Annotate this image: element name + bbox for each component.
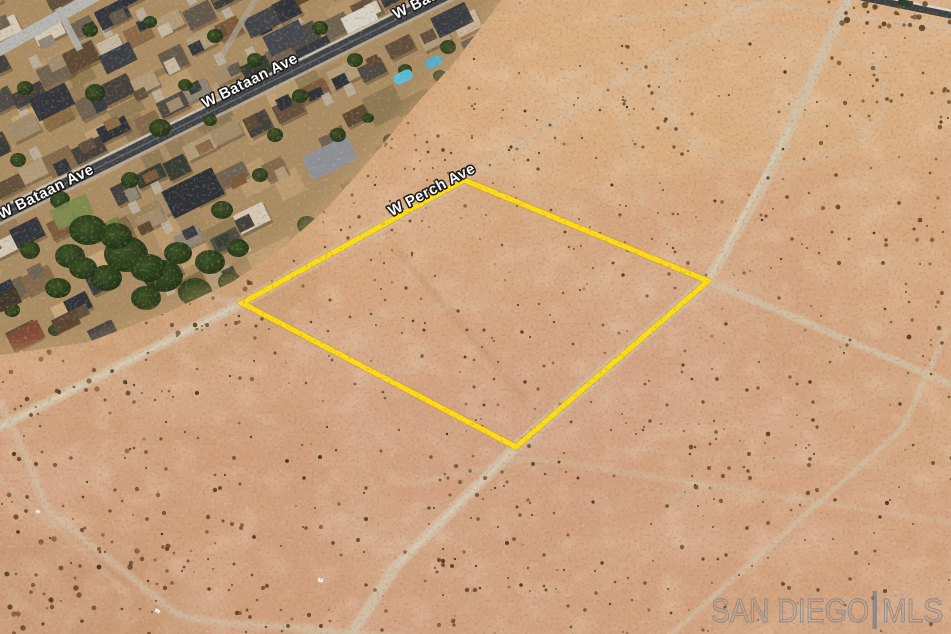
svg-text:MLS: MLS	[882, 592, 943, 629]
svg-text:SAN DIEGO: SAN DIEGO	[711, 592, 869, 629]
